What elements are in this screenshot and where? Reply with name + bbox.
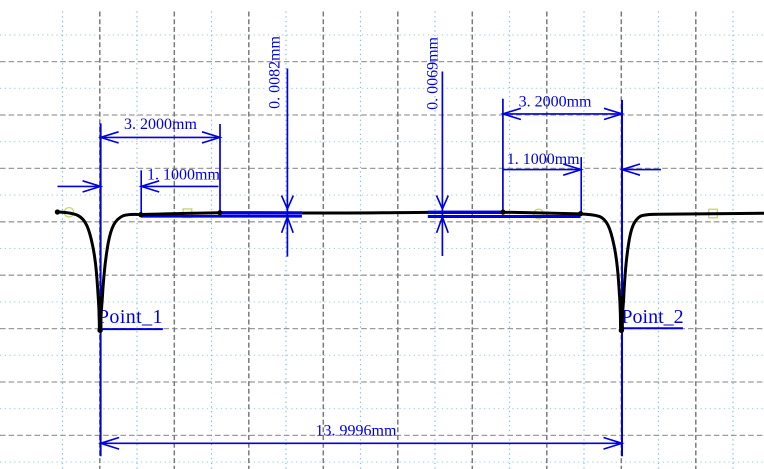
svg-text:Point_2: Point_2 [621, 306, 683, 328]
svg-text:0. 0082mm: 0. 0082mm [266, 35, 283, 108]
svg-text:3. 2000mm: 3. 2000mm [124, 116, 197, 133]
svg-text:13. 9996mm: 13. 9996mm [316, 422, 397, 439]
svg-text:3. 2000mm: 3. 2000mm [519, 93, 592, 110]
svg-text:Point_1: Point_1 [98, 306, 163, 328]
svg-text:1. 1000mm: 1. 1000mm [507, 151, 580, 168]
svg-text:1. 1000mm: 1. 1000mm [147, 167, 220, 184]
svg-text:0. 0069mm: 0. 0069mm [425, 36, 442, 109]
